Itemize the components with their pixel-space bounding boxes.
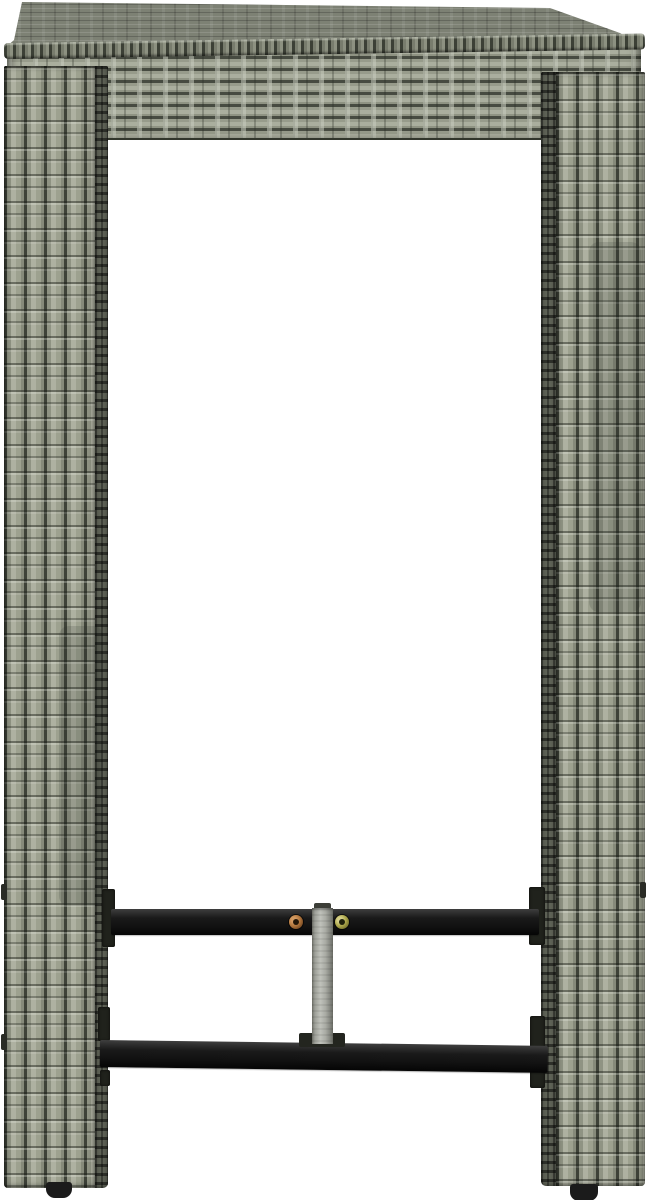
right-leg	[541, 72, 645, 1186]
right-foot-cap	[570, 1184, 598, 1200]
right-leg-front-weave	[556, 72, 645, 1186]
copper-screw	[289, 915, 303, 929]
right-outer-clip-upper	[640, 882, 646, 898]
left-outer-clip-upper	[1, 884, 7, 900]
left-foot-cap	[46, 1182, 72, 1198]
lower-left-bracket	[98, 1007, 110, 1041]
lower-left-tab	[100, 1070, 110, 1086]
center-strut	[312, 908, 333, 1044]
right-leg-shading-patch	[589, 242, 641, 612]
left-leg	[4, 66, 108, 1188]
product-photo-bar-table	[0, 0, 647, 1200]
zinc-screw	[335, 915, 349, 929]
left-leg-shading-patch	[59, 626, 103, 906]
left-outer-clip-lower	[1, 1034, 7, 1050]
